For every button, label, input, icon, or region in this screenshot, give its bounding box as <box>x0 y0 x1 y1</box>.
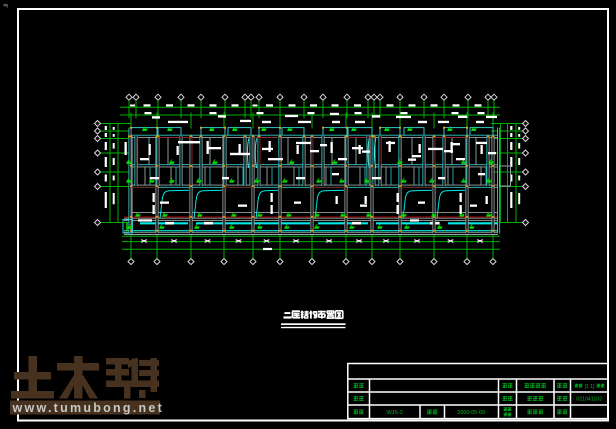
svg-text:WJS-2: WJS-2 <box>387 410 403 416</box>
svg-text:[1:1]: [1:1] <box>585 384 595 390</box>
svg-text:www.tumubong.net: www.tumubong.net <box>12 401 165 415</box>
svg-text:021041102: 021041102 <box>576 396 602 402</box>
svg-text:2000-05-09: 2000-05-09 <box>457 410 485 416</box>
